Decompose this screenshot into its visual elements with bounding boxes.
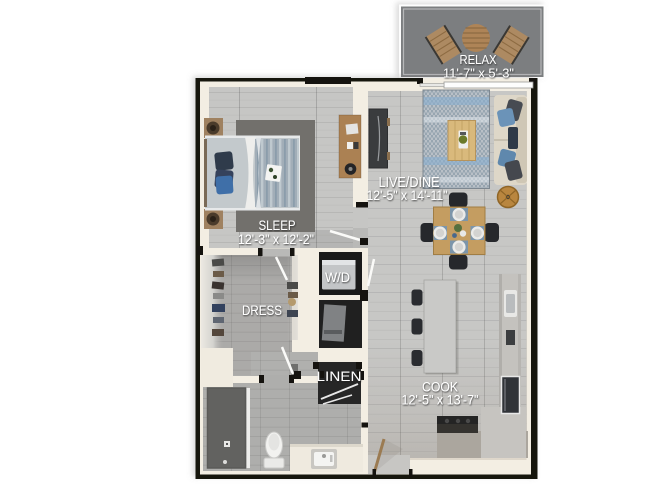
svg-text:12'-5" x 13'-7": 12'-5" x 13'-7" xyxy=(402,392,479,408)
svg-text:12'-3" x 12'-2": 12'-3" x 12'-2" xyxy=(238,231,314,247)
svg-text:LINEN: LINEN xyxy=(317,369,362,384)
svg-text:DRESS: DRESS xyxy=(242,303,282,318)
svg-text:12'-5" x 14'-11": 12'-5" x 14'-11" xyxy=(367,187,448,203)
svg-text:W/D: W/D xyxy=(325,270,350,285)
svg-text:11'-7" x 5'-3": 11'-7" x 5'-3" xyxy=(443,66,514,81)
